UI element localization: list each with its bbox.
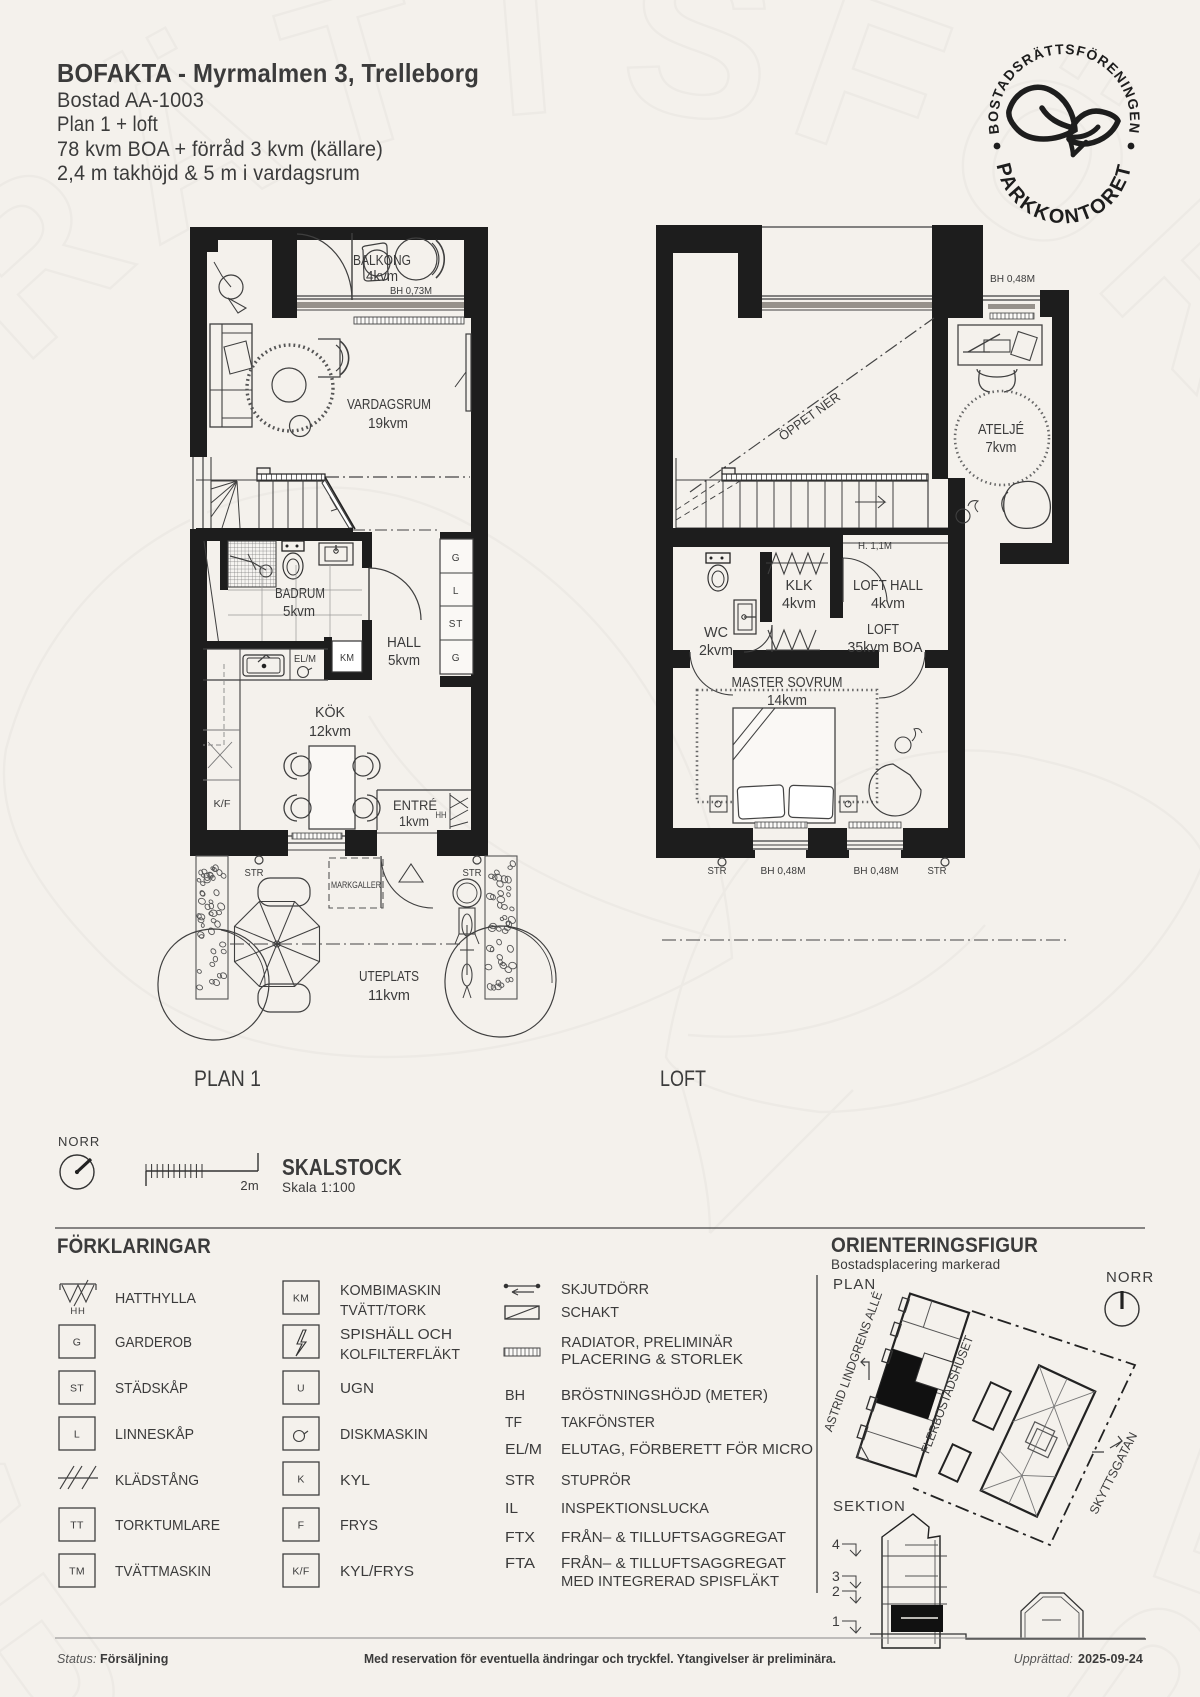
svg-text:TM: TM bbox=[69, 1566, 85, 1578]
svg-text:SKJUTDÖRR: SKJUTDÖRR bbox=[561, 1280, 649, 1298]
svg-text:K/F: K/F bbox=[214, 799, 231, 810]
svg-text:2: 2 bbox=[832, 1583, 840, 1599]
svg-text:Bostadsplacering markerad: Bostadsplacering markerad bbox=[831, 1257, 1000, 1272]
svg-text:78 kvm BOA + förråd 3 kvm (käl: 78 kvm BOA + förråd 3 kvm (källare) bbox=[57, 138, 383, 161]
svg-text:HALL: HALL bbox=[387, 635, 421, 651]
svg-text:FTX: FTX bbox=[505, 1529, 535, 1546]
svg-text:F: F bbox=[298, 1520, 305, 1532]
svg-text:2,4 m takhöjd & 5 m i vardagsr: 2,4 m takhöjd & 5 m i vardagsrum bbox=[57, 162, 360, 185]
svg-text:STR: STR bbox=[463, 868, 482, 879]
svg-text:UGN: UGN bbox=[340, 1380, 374, 1397]
svg-text:FRYS: FRYS bbox=[340, 1517, 378, 1534]
svg-text:FRÅN– & TILLUFTSAGGREGAT: FRÅN– & TILLUFTSAGGREGAT bbox=[561, 1555, 786, 1572]
svg-text:4kvm: 4kvm bbox=[782, 596, 816, 612]
svg-text:SPISHÄLL OCH: SPISHÄLL OCH bbox=[340, 1326, 452, 1343]
svg-text:4kvm: 4kvm bbox=[871, 596, 905, 612]
svg-text:Upprättad:: Upprättad: bbox=[1014, 1652, 1073, 1666]
svg-text:KYL: KYL bbox=[340, 1472, 370, 1489]
svg-text:ST: ST bbox=[449, 619, 463, 630]
svg-text:1: 1 bbox=[832, 1613, 840, 1629]
svg-text:Bostad AA-1003: Bostad AA-1003 bbox=[57, 89, 204, 112]
svg-text:U: U bbox=[297, 1383, 305, 1395]
svg-text:L: L bbox=[74, 1429, 80, 1441]
svg-text:19kvm: 19kvm bbox=[368, 416, 408, 432]
svg-text:EL/M: EL/M bbox=[294, 654, 316, 665]
svg-text:STR: STR bbox=[245, 868, 264, 879]
svg-text:RADIATOR, PRELIMINÄR: RADIATOR, PRELIMINÄR bbox=[561, 1334, 733, 1351]
svg-text:FÖRKLARINGAR: FÖRKLARINGAR bbox=[57, 1235, 211, 1258]
svg-text:BH 0,48M: BH 0,48M bbox=[761, 866, 806, 877]
svg-text:PLAN 1: PLAN 1 bbox=[194, 1066, 261, 1091]
svg-text:HATTHYLLA: HATTHYLLA bbox=[115, 1290, 196, 1307]
svg-text:KM: KM bbox=[293, 1293, 309, 1305]
svg-text:2kvm: 2kvm bbox=[699, 643, 733, 659]
svg-text:STR: STR bbox=[928, 866, 947, 877]
svg-text:TT: TT bbox=[70, 1520, 84, 1532]
svg-text:DISKMASKIN: DISKMASKIN bbox=[340, 1426, 428, 1443]
svg-text:35kvm BOA: 35kvm BOA bbox=[848, 640, 923, 656]
svg-text:ENTRÉ: ENTRÉ bbox=[393, 798, 437, 813]
svg-text:MED INTEGRERAD SPISFLÄKT: MED INTEGRERAD SPISFLÄKT bbox=[561, 1573, 779, 1590]
svg-text:5kvm: 5kvm bbox=[283, 604, 315, 620]
svg-text:ORIENTERINGSFIGUR: ORIENTERINGSFIGUR bbox=[831, 1234, 1038, 1257]
svg-text:11kvm: 11kvm bbox=[368, 988, 410, 1004]
svg-text:KOLFILTERFLÄKT: KOLFILTERFLÄKT bbox=[340, 1346, 460, 1363]
svg-text:LOFT: LOFT bbox=[867, 622, 899, 638]
svg-text:L: L bbox=[453, 586, 459, 597]
svg-text:TAKFÖNSTER: TAKFÖNSTER bbox=[561, 1413, 655, 1431]
svg-text:2m: 2m bbox=[240, 1178, 259, 1193]
svg-text:IL: IL bbox=[505, 1500, 518, 1517]
svg-text:NORR: NORR bbox=[1106, 1269, 1154, 1286]
svg-text:Status:: Status: bbox=[57, 1652, 97, 1666]
svg-text:7kvm: 7kvm bbox=[986, 440, 1017, 456]
svg-text:TF: TF bbox=[505, 1414, 522, 1431]
svg-text:STÄDSKÅP: STÄDSKÅP bbox=[115, 1380, 188, 1397]
svg-text:STR: STR bbox=[708, 866, 727, 877]
svg-text:3: 3 bbox=[832, 1568, 840, 1584]
svg-text:KLK: KLK bbox=[786, 578, 813, 594]
svg-text:TORKTUMLARE: TORKTUMLARE bbox=[115, 1517, 220, 1534]
svg-text:KYL/FRYS: KYL/FRYS bbox=[340, 1563, 414, 1580]
svg-text:Försäljning: Försäljning bbox=[100, 1652, 168, 1666]
svg-text:14kvm: 14kvm bbox=[767, 693, 807, 709]
svg-text:FTA: FTA bbox=[505, 1555, 535, 1572]
svg-text:BOFAKTA - Myrmalmen 3, Trelleb: BOFAKTA - Myrmalmen 3, Trelleborg bbox=[57, 58, 479, 88]
svg-text:EL/M: EL/M bbox=[505, 1441, 542, 1458]
svg-text:ELUTAG, FÖRBERETT FÖR MICRO: ELUTAG, FÖRBERETT FÖR MICRO bbox=[561, 1440, 813, 1458]
svg-text:BRÖSTNINGSHÖJD (METER): BRÖSTNINGSHÖJD (METER) bbox=[561, 1386, 768, 1404]
svg-text:KM: KM bbox=[340, 653, 354, 664]
svg-text:K: K bbox=[297, 1474, 304, 1486]
svg-text:TVÄTTMASKIN: TVÄTTMASKIN bbox=[115, 1563, 211, 1580]
svg-text:MASTER SOVRUM: MASTER SOVRUM bbox=[732, 675, 843, 691]
svg-text:12kvm: 12kvm bbox=[309, 724, 351, 740]
svg-text:BH 0,73M: BH 0,73M bbox=[390, 286, 432, 297]
svg-text:PLAN: PLAN bbox=[833, 1276, 876, 1293]
svg-text:SCHAKT: SCHAKT bbox=[561, 1304, 619, 1321]
svg-text:HH: HH bbox=[70, 1306, 85, 1317]
svg-text:LOFT: LOFT bbox=[660, 1066, 706, 1091]
svg-text:Med reservation för eventuella: Med reservation för eventuella ändringar… bbox=[364, 1652, 836, 1666]
svg-text:BH 0,48M: BH 0,48M bbox=[990, 274, 1035, 285]
svg-text:BALKONG: BALKONG bbox=[353, 253, 411, 269]
svg-text:BADRUM: BADRUM bbox=[275, 586, 325, 602]
svg-text:NORR: NORR bbox=[58, 1134, 100, 1149]
svg-text:LINNESKÅP: LINNESKÅP bbox=[115, 1426, 194, 1443]
svg-text:G: G bbox=[452, 653, 461, 664]
svg-text:2025-09-24: 2025-09-24 bbox=[1078, 1652, 1143, 1666]
svg-text:KÖK: KÖK bbox=[315, 703, 345, 721]
svg-text:VARDAGSRUM: VARDAGSRUM bbox=[347, 397, 431, 413]
svg-text:H. 1,1M: H. 1,1M bbox=[858, 541, 892, 552]
svg-text:1kvm: 1kvm bbox=[399, 814, 429, 829]
svg-text:WC: WC bbox=[704, 625, 728, 641]
svg-text:INSPEKTIONSLUCKA: INSPEKTIONSLUCKA bbox=[561, 1500, 709, 1517]
svg-text:STUPRÖR: STUPRÖR bbox=[561, 1471, 631, 1489]
svg-text:G: G bbox=[452, 553, 461, 564]
svg-text:ST: ST bbox=[70, 1383, 84, 1395]
svg-text:KLÄDSTÅNG: KLÄDSTÅNG bbox=[115, 1472, 199, 1489]
svg-text:FRÅN– & TILLUFTSAGGREGAT: FRÅN– & TILLUFTSAGGREGAT bbox=[561, 1529, 786, 1546]
svg-text:TVÄTT/TORK: TVÄTT/TORK bbox=[340, 1302, 426, 1319]
svg-text:GARDEROB: GARDEROB bbox=[115, 1334, 192, 1351]
svg-text:K/F: K/F bbox=[292, 1566, 309, 1578]
svg-text:Plan 1 + loft: Plan 1 + loft bbox=[57, 113, 158, 136]
svg-text:5kvm: 5kvm bbox=[388, 653, 420, 669]
svg-text:4: 4 bbox=[832, 1536, 840, 1552]
svg-text:BH 0,48M: BH 0,48M bbox=[854, 866, 899, 877]
svg-text:UTEPLATS: UTEPLATS bbox=[359, 969, 419, 985]
svg-text:MARKGALLER: MARKGALLER bbox=[331, 880, 381, 890]
svg-text:Skala 1:100: Skala 1:100 bbox=[282, 1180, 356, 1195]
svg-text:SKALSTOCK: SKALSTOCK bbox=[282, 1154, 402, 1180]
svg-text:STR: STR bbox=[505, 1472, 535, 1489]
svg-text:PLACERING & STORLEK: PLACERING & STORLEK bbox=[561, 1351, 743, 1368]
svg-text:BH: BH bbox=[505, 1387, 525, 1404]
svg-text:G: G bbox=[73, 1337, 81, 1349]
svg-text:LOFT HALL: LOFT HALL bbox=[853, 578, 923, 594]
svg-text:ATELJÉ: ATELJÉ bbox=[978, 421, 1024, 438]
svg-text:4kvm: 4kvm bbox=[366, 269, 398, 285]
svg-text:SEKTION: SEKTION bbox=[833, 1498, 906, 1515]
svg-text:HH: HH bbox=[436, 810, 447, 820]
svg-text:KOMBIMASKIN: KOMBIMASKIN bbox=[340, 1282, 441, 1299]
